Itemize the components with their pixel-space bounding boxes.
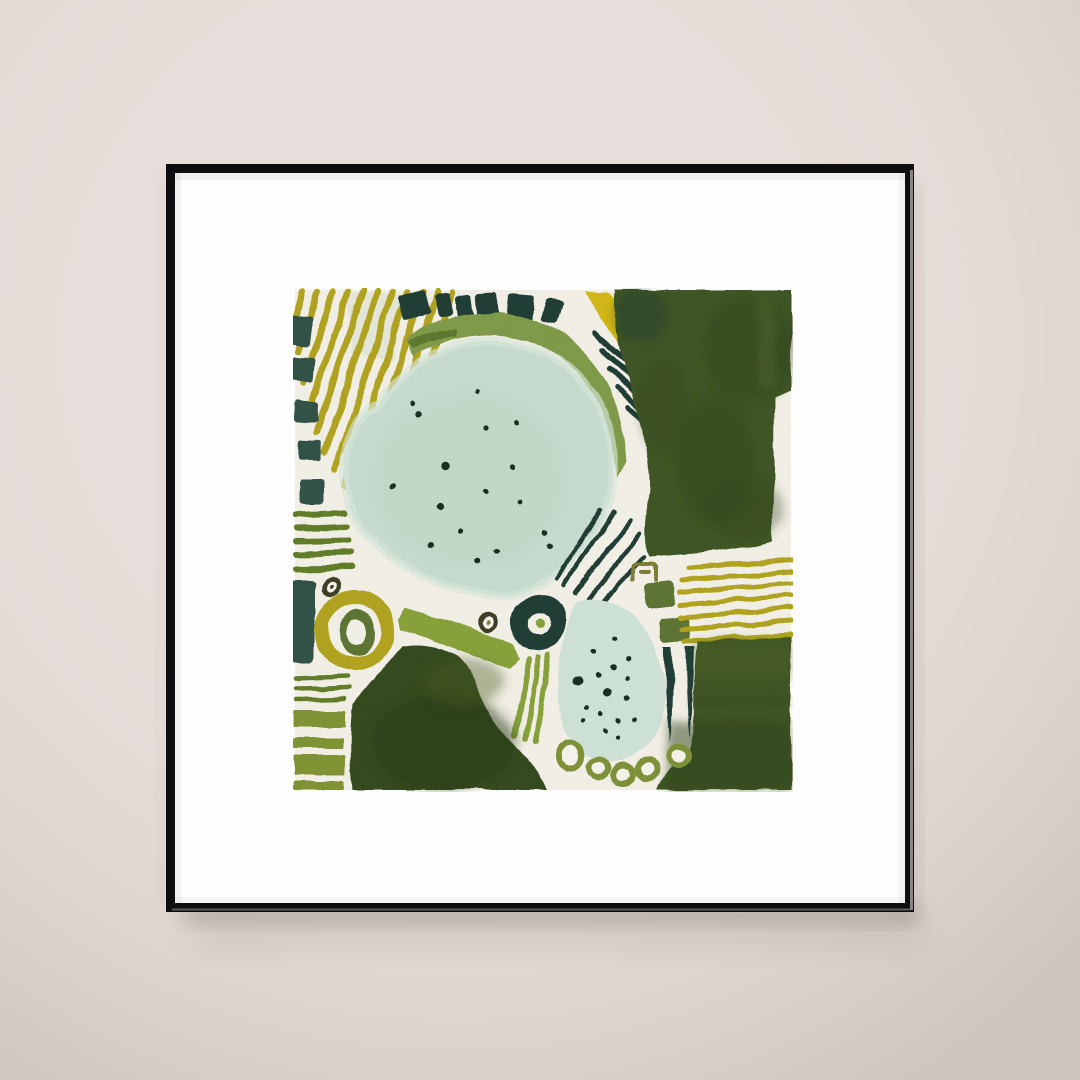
art-print (288, 290, 795, 790)
scene-canvas (0, 0, 1080, 1080)
frame-edge-highlight (910, 170, 913, 910)
frame-bottom-highlight (172, 909, 910, 911)
framed-print-photo (0, 0, 1080, 1080)
paper-grain (295, 290, 791, 790)
